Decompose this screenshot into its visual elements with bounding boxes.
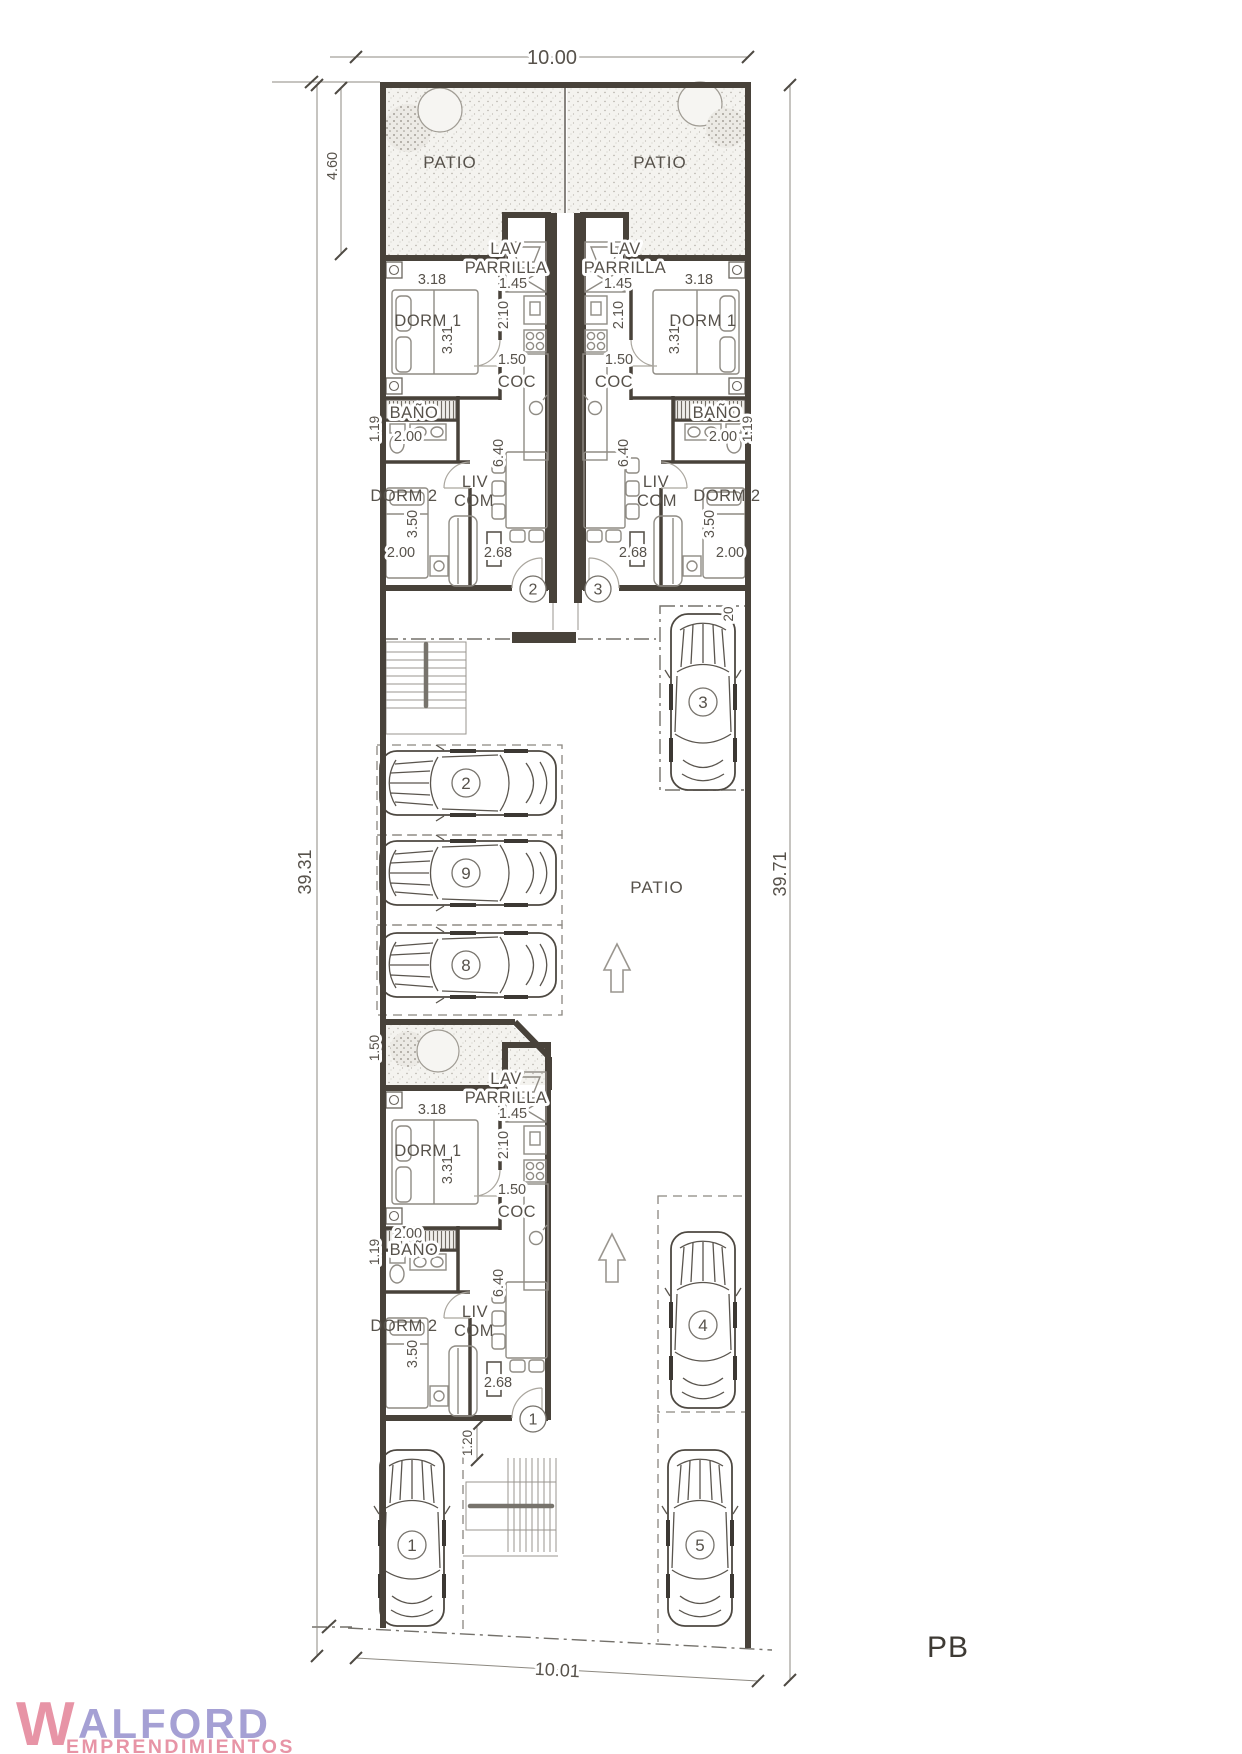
- lo-dim-bano-d: 1.19: [367, 1239, 382, 1265]
- parking-number-3: 3: [698, 693, 707, 712]
- lo-dim-bano-w: 2.00: [394, 1226, 422, 1242]
- ur-dim-dorm2-w: 2.00: [716, 545, 744, 561]
- ur-dim-dorm2-d: 3.50: [702, 510, 718, 538]
- dim-car3-stall: 20: [721, 606, 736, 621]
- tree-icon: [706, 108, 746, 148]
- tree-icon: [417, 1030, 459, 1072]
- lo-dim-lav-w: 1.45: [499, 1106, 527, 1122]
- patio-label-left: PATIO: [423, 153, 477, 172]
- dim-rear-patio: 1.50: [367, 1035, 382, 1061]
- stairs-upper: [386, 642, 466, 734]
- ul-dim-coc-w: 1.50: [498, 352, 526, 368]
- ur-room-com: COM: [637, 492, 677, 510]
- ur-dim-dorm1-w: 3.18: [685, 272, 713, 288]
- entry-number-3: 3: [594, 582, 603, 599]
- ul-dim-dorm2-w: 2.00: [387, 545, 415, 561]
- ur-dim-lav-d: 2.10: [611, 301, 627, 329]
- ul-dim-livcom-d: 6.40: [491, 439, 507, 467]
- tree-icon: [418, 88, 462, 132]
- lo-dim-dorm2-d: 3.50: [405, 1340, 421, 1368]
- ul-dim-dorm1-w: 3.18: [418, 272, 446, 288]
- ur-dim-bano-d: 1.19: [740, 416, 755, 442]
- parking-badges: 2 9 8 3 4 1 5: [398, 688, 717, 1559]
- lo-room-dorm2: DORM 2: [370, 1317, 437, 1335]
- lo-dim-dorm1-w: 3.18: [418, 1102, 446, 1118]
- parking-number-2: 2: [461, 774, 470, 793]
- ul-room-dorm2: DORM 2: [370, 487, 437, 505]
- ur-room-coc: COC: [595, 373, 633, 391]
- ur-room-bano: BAÑO: [693, 402, 742, 422]
- dim-depth-right: 39.71: [770, 851, 790, 896]
- dim-width-top: 10.00: [527, 47, 577, 69]
- ul-dim-bano-w: 2.00: [394, 429, 422, 445]
- ul-room-liv: LIV: [462, 473, 488, 491]
- ul-dim-lav-w: 1.45: [499, 276, 527, 292]
- parking-number-4: 4: [698, 1316, 707, 1335]
- patio-label-central: PATIO: [630, 878, 684, 897]
- entry-number-1: 1: [529, 1412, 538, 1429]
- parking-number-9: 9: [461, 864, 470, 883]
- ul-dim-dorm1-d: 3.31: [440, 326, 456, 354]
- dim-depth-left: 39.31: [295, 849, 315, 894]
- stairs-lower: [463, 1458, 558, 1556]
- floor-plan-drawing: 2 3 1 2 9 8 3 4 1 5 10.00 4.60 39.31 39.…: [0, 0, 1242, 1754]
- lo-room-com: COM: [454, 1322, 494, 1340]
- ul-room-lav: LAV: [490, 240, 521, 258]
- parking-number-1: 1: [407, 1536, 416, 1555]
- ul-dim-dorm2-d: 3.50: [405, 510, 421, 538]
- entry-number-2: 2: [529, 582, 538, 599]
- ul-room-coc: COC: [498, 373, 536, 391]
- logo-tagline: EMPRENDIMIENTOS: [66, 1736, 295, 1754]
- lo-dim-coc-w: 1.50: [498, 1182, 526, 1198]
- ur-dim-livcom-d: 6.40: [616, 439, 632, 467]
- dim-entry-path: 1.20: [460, 1430, 475, 1456]
- lo-room-bano: BAÑO: [390, 1239, 439, 1259]
- ul-dim-livcom-w: 2.68: [484, 545, 512, 561]
- lo-room-lav: LAV: [490, 1070, 521, 1088]
- parking-number-8: 8: [461, 956, 470, 975]
- lo-dim-livcom-w: 2.68: [484, 1375, 512, 1391]
- dim-width-bottom: 10.01: [534, 1659, 580, 1682]
- lo-dim-livcom-d: 6.40: [491, 1269, 507, 1297]
- lo-dim-lav-d: 2.10: [496, 1131, 512, 1159]
- drive-arrow-icon: [604, 944, 630, 992]
- ul-room-bano: BAÑO: [390, 402, 439, 422]
- ul-room-com: COM: [454, 492, 494, 510]
- dim-front-patio: 4.60: [325, 152, 341, 180]
- plan-level-label: PB: [927, 1631, 969, 1664]
- patio-label-right: PATIO: [633, 153, 687, 172]
- ur-room-liv: LIV: [643, 473, 669, 491]
- ur-dim-bano-w: 2.00: [709, 429, 737, 445]
- ul-dim-bano-d: 1.19: [367, 416, 382, 442]
- unit-entry-badges: 2 3 1: [520, 576, 611, 1432]
- ur-dim-dorm1-d: 3.31: [667, 326, 683, 354]
- floor-plan-page: 2 3 1 2 9 8 3 4 1 5 10.00 4.60 39.31 39.…: [0, 0, 1242, 1754]
- walford-logo: W ALFORD EMPRENDIMIENTOS: [16, 1690, 295, 1754]
- drive-arrow-icon: [599, 1234, 625, 1282]
- parking-number-5: 5: [695, 1536, 704, 1555]
- lo-room-parrilla: PARRILLA: [465, 1089, 548, 1107]
- ur-dim-livcom-w: 2.68: [619, 545, 647, 561]
- lo-room-liv: LIV: [462, 1303, 488, 1321]
- ul-dim-lav-d: 2.10: [496, 301, 512, 329]
- ur-room-parrilla: PARRILLA: [584, 259, 667, 277]
- ur-dim-lav-w: 1.45: [604, 276, 632, 292]
- ul-room-parrilla: PARRILLA: [465, 259, 548, 277]
- rear-patio-strip: [380, 1022, 549, 1090]
- ur-room-dorm2: DORM 2: [693, 487, 760, 505]
- ur-room-lav: LAV: [609, 240, 640, 258]
- ur-dim-coc-w: 1.50: [605, 352, 633, 368]
- lo-dim-dorm1-d: 3.31: [440, 1156, 456, 1184]
- lo-room-coc: COC: [498, 1203, 536, 1221]
